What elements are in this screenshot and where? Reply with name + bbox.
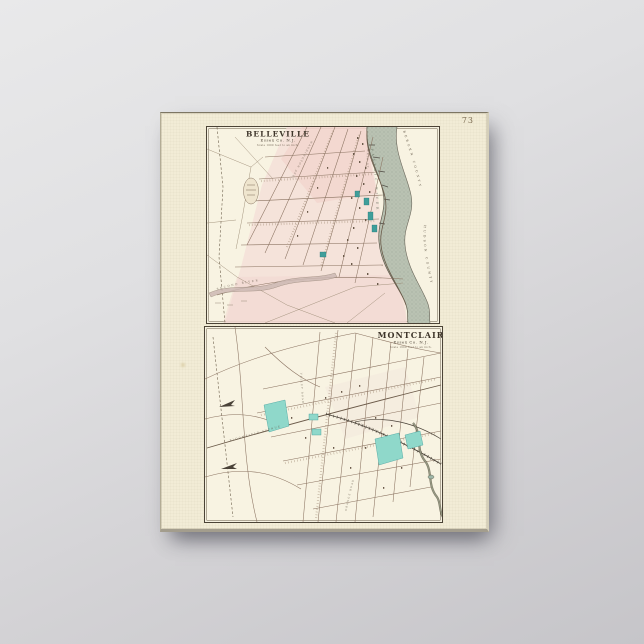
montclair-streets — [205, 327, 441, 522]
montclair-street-label: BLOOMFIELD AVENUE — [229, 425, 281, 442]
belleville-cemetery — [244, 178, 259, 204]
belleville-map-drawing: PASSAIC RIVER BERGEN COUNTY HUDSON COUNT… — [207, 127, 439, 323]
map-montclair: BLOOMFIELD AVENUE VALLEY ROAD ORANGE ROA… — [204, 326, 443, 523]
belleville-county-lower-label: HUDSON COUNTY — [422, 225, 433, 285]
montclair-street-label: ORANGE ROAD — [345, 479, 356, 511]
foxing-spot — [181, 363, 185, 367]
montclair-subtitle: Essex Co. N.J. — [394, 340, 429, 345]
page-number: 73 — [462, 116, 474, 125]
belleville-subtitle: Essex Co. N.J. — [261, 138, 296, 143]
montclair-title: MONTCLAIR — [378, 330, 442, 340]
north-arrow-icon — [219, 400, 237, 469]
belleville-street-label: MAIN ST. — [366, 149, 369, 170]
montclair-street-label: VALLEY ROAD — [299, 372, 304, 404]
montclair-boundary-dashed — [213, 337, 233, 517]
map-belleville: PASSAIC RIVER BERGEN COUNTY HUDSON COUNT… — [206, 126, 440, 324]
montclair-map-drawing: BLOOMFIELD AVENUE VALLEY ROAD ORANGE ROA… — [205, 327, 442, 522]
montclair-title-block: MONTCLAIR Essex Co. N.J. Scale 1600 feet… — [378, 330, 442, 349]
montclair-scale-note: Scale 1600 feet to an inch. — [390, 346, 432, 349]
belleville-scale-note: Scale 1000 feet to an inch. — [257, 144, 299, 147]
product-photo: { "artwork": { "page_number": "73", "bel… — [0, 0, 644, 644]
canvas-print: 73 — [160, 112, 489, 532]
